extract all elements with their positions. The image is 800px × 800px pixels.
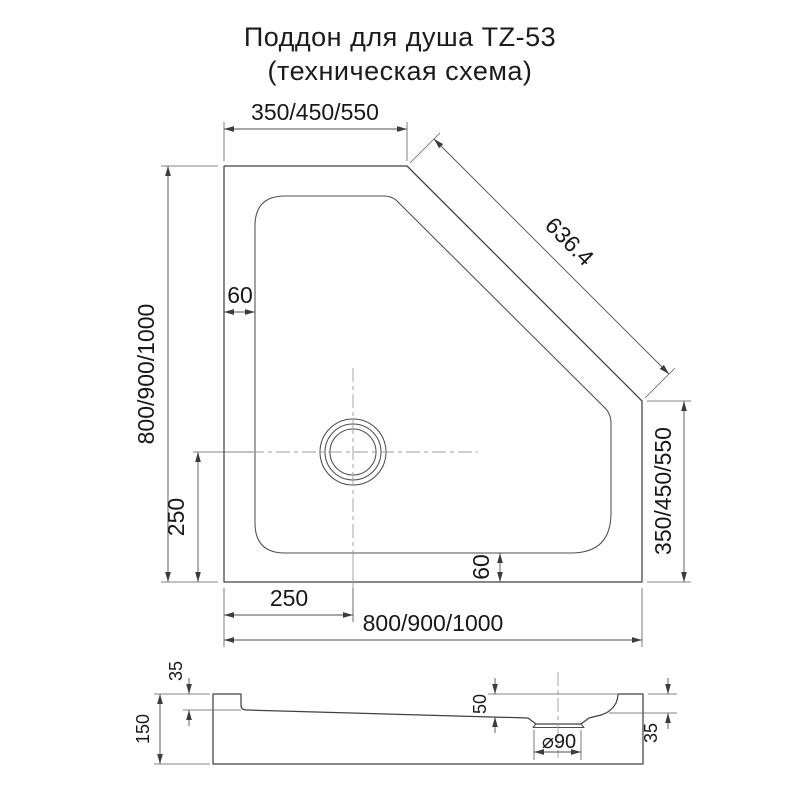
dimension-diagonal: 636.4: [410, 133, 675, 398]
dimension-total-height: 150: [133, 694, 210, 764]
dimension-label-depth: 50: [470, 694, 490, 714]
dimension-label-rim-bottom: 60: [468, 554, 494, 580]
dimension-label-rim-top: 60: [227, 282, 253, 308]
dimension-right-side: 350/450/550: [647, 401, 691, 582]
tray-inner-rim-outline: [255, 196, 611, 553]
dimension-label-left-height: 800/900/1000: [133, 304, 159, 445]
dimension-drain-offset-vertical: 250: [163, 452, 252, 582]
technical-drawing-page: Поддон для душа TZ-53 (техническая схема…: [0, 0, 800, 800]
dimension-drain-diameter: ⌀90: [534, 730, 581, 760]
dimension-rim-bottom: 60: [468, 553, 500, 582]
dimension-label-drain-horizontal: 250: [270, 585, 308, 611]
drawing-canvas: 350/450/550 636.4 800/900/1000: [0, 0, 800, 800]
extension-line: [410, 133, 440, 163]
dimension-label-drain-diameter: ⌀90: [542, 731, 576, 753]
tray-outline-top-view: [224, 166, 642, 582]
dimension-label-diagonal: 636.4: [540, 212, 599, 271]
dimension-depth-at-drain: 50: [470, 678, 617, 733]
extension-line: [645, 368, 675, 398]
dimension-rim-top-left: 60: [224, 282, 255, 312]
dimension-label-right-side: 350/450/550: [650, 427, 676, 555]
dimension-label-top-width: 350/450/550: [251, 99, 379, 125]
dimension-label-total-height: 150: [133, 714, 153, 744]
dimension-label-bottom-width: 800/900/1000: [363, 610, 504, 636]
top-view: 350/450/550 636.4 800/900/1000: [133, 99, 691, 647]
dimension-line: [434, 139, 669, 374]
section-view: 35 150 50 ⌀90: [133, 661, 677, 764]
dimension-drain-offset-horizontal: 250: [224, 585, 353, 647]
dimension-label-rim-left: 35: [166, 661, 186, 681]
dimension-label-rim-right: 35: [641, 723, 661, 743]
dimension-top-width: 350/450/550: [224, 99, 407, 161]
dimension-label-drain-vertical: 250: [163, 498, 189, 536]
tray-section-profile: [213, 694, 643, 764]
